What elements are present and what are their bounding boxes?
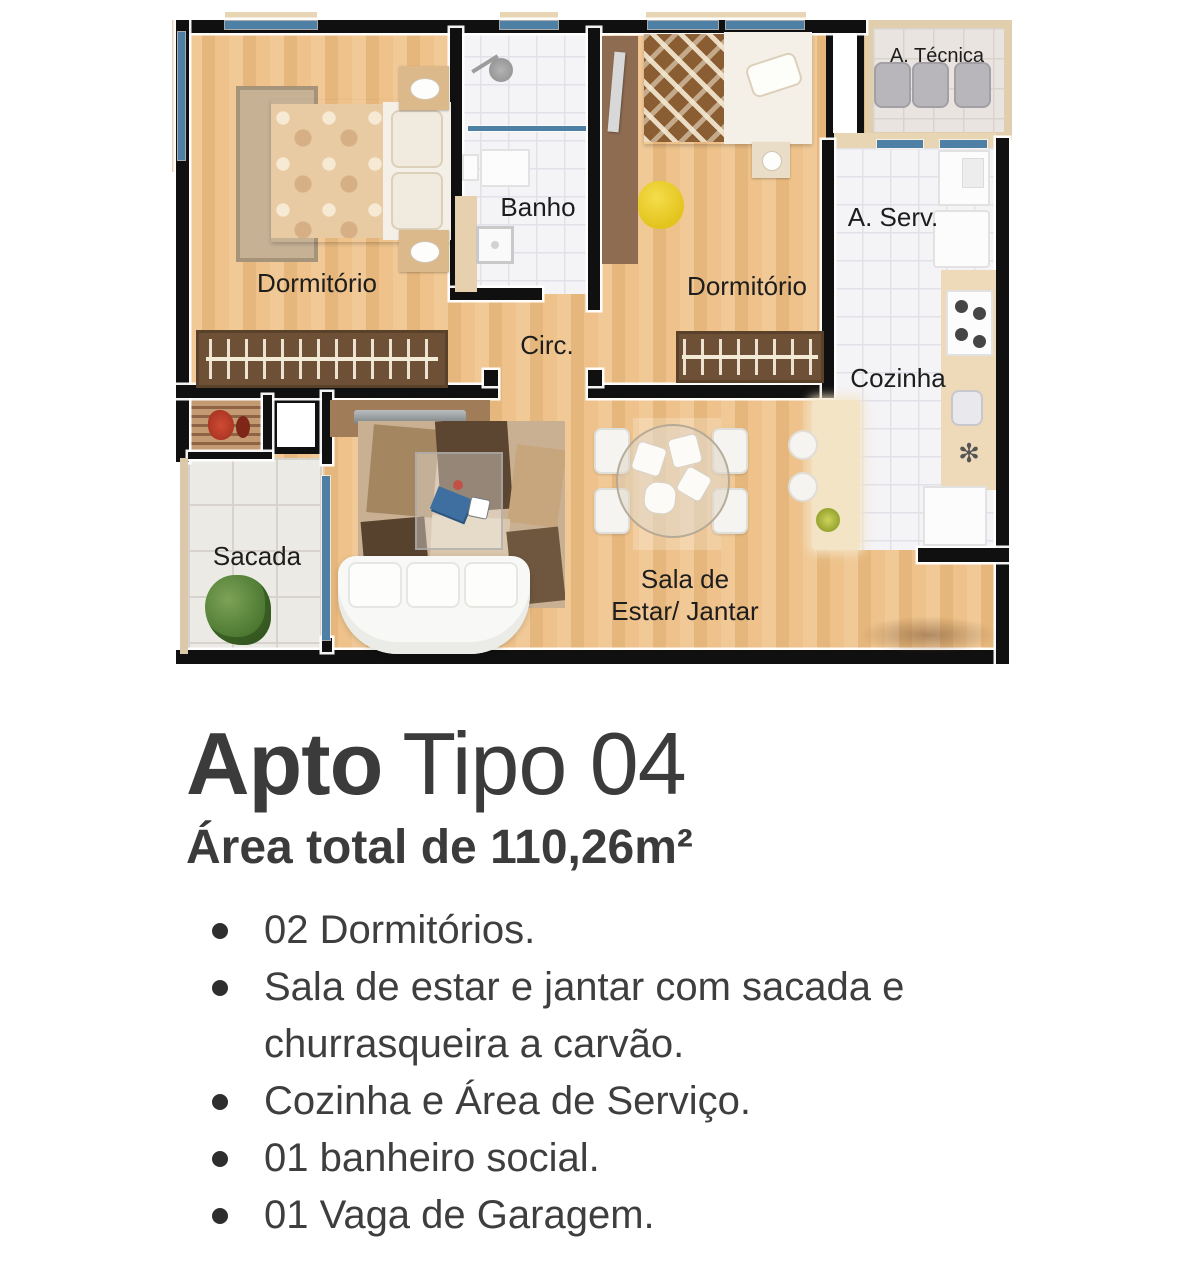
total-area-subtitle: Área total de 110,26m² [186, 820, 693, 875]
dorm1-lamp-bottom [410, 241, 440, 263]
wall-dorm2-bottom [588, 385, 834, 398]
feature-item-cozinha: Cozinha e Área de Serviço. [204, 1073, 1064, 1130]
page-title: AptoTipo 04 [186, 716, 686, 812]
window-glass-dorm2a [648, 21, 718, 29]
grill-meat [208, 410, 234, 440]
dorm1-nightstand-bottom [399, 230, 449, 272]
kitchen-sink [951, 390, 983, 426]
label-sala: Sala de Estar/ Jantar [611, 563, 758, 627]
sofa-cushion-3 [464, 562, 518, 608]
dorm1-lamp-top [410, 78, 440, 100]
wall-sacada-bottom-cap [322, 638, 332, 652]
dorm1-blanket [271, 104, 385, 238]
dorm2-beanbag [638, 181, 684, 229]
shower-tray [476, 226, 514, 264]
floor-plan: ✻ Dormitório Banho Circ. Dormit [0, 0, 1179, 700]
dorm2-desk-object [762, 151, 782, 171]
label-atecnica: A. Técnica [890, 40, 984, 72]
plate-1 [630, 440, 668, 478]
sofa-cushion-1 [348, 562, 402, 608]
laundry-tank [938, 150, 990, 206]
window-glass-aserv-2 [940, 140, 987, 148]
dorm2-wardrobe [676, 331, 824, 383]
coffee-table-candle [453, 480, 463, 490]
stove-burner-3 [955, 328, 968, 341]
banho-vanity [455, 196, 477, 292]
wall-banho-dorm2 [588, 28, 600, 310]
floor-shadow [858, 616, 998, 654]
stool-1 [788, 430, 818, 460]
dorm1-wardrobe-rail [206, 357, 438, 361]
dorm1-pillow-1 [391, 110, 443, 168]
coffee-table-book [430, 486, 472, 522]
grill-meat-2 [236, 416, 250, 438]
dorm2-bed [644, 32, 812, 144]
label-dorm2: Dormitório [687, 270, 807, 302]
kitchen-faucet: ✻ [954, 438, 984, 468]
wall-dorm1-bottom-cap [484, 370, 498, 386]
banho-toilet [462, 154, 479, 181]
washing-machine [933, 210, 990, 268]
dorm1-pillow-2 [391, 172, 443, 230]
laundry-tank-basin [962, 158, 984, 188]
shower-drain [491, 241, 499, 249]
sofa [338, 556, 530, 654]
label-sala-line2: Estar/ Jantar [611, 595, 758, 627]
feature-item-banheiro: 01 banheiro social. [204, 1130, 1064, 1187]
stove-burner-2 [973, 307, 986, 320]
title-apto: Apto [186, 714, 382, 813]
shower-glass [468, 126, 586, 131]
counter-plant [816, 508, 840, 532]
feature-list: 02 Dormitórios. Sala de estar e jantar c… [204, 902, 1064, 1244]
plate-3 [675, 465, 713, 503]
dorm2-wardrobe-rail [682, 355, 818, 359]
coffee-table [415, 452, 503, 550]
feature-item-sala: Sala de estar e jantar com sacada e chur… [204, 959, 1064, 1073]
duct-shaft-balcony [270, 396, 322, 454]
dorm1-nightstand-top [399, 66, 449, 110]
fridge [923, 486, 987, 546]
balcony-sliding-door [322, 476, 330, 640]
balcony-railing [180, 458, 188, 654]
coffee-table-dice [467, 496, 491, 520]
dorm1-bed [271, 100, 451, 242]
dorm2-desk [752, 142, 790, 178]
stool-2 [788, 472, 818, 502]
stove-burner-4 [973, 335, 986, 348]
banho-sink [480, 149, 530, 187]
window-glass-left [178, 32, 185, 160]
feature-item-garagem: 01 Vaga de Garagem. [204, 1187, 1064, 1244]
dorm1-wardrobe [196, 330, 448, 388]
label-sala-line1: Sala de [611, 563, 758, 595]
barbecue-grill [190, 398, 264, 454]
dorm2-blanket [644, 34, 726, 142]
label-aserv: A. Serv. [848, 201, 939, 233]
shower-head [489, 58, 513, 82]
sofa-cushion-2 [406, 562, 460, 608]
feature-item-dormitorios: 02 Dormitórios. [204, 902, 1064, 959]
dining-table [616, 424, 730, 538]
plate-4 [642, 480, 677, 515]
window-glass-dorm1 [225, 21, 317, 29]
wall-outer-right [996, 138, 1009, 664]
flyer-page: { "plan": { "rooms": { "dorm1": "Dormitó… [0, 0, 1179, 1265]
wall-niche-right [263, 395, 272, 458]
label-circ: Circ. [520, 329, 573, 361]
stove-burner-1 [955, 300, 968, 313]
duct-shaft-top [826, 26, 864, 140]
window-glass-banho [500, 21, 558, 29]
wall-niche-bottom [188, 452, 272, 459]
window-glass-dorm2b [726, 21, 804, 29]
label-cozinha: Cozinha [850, 362, 945, 394]
label-sacada: Sacada [213, 540, 301, 572]
wall-kitchen-bottom [918, 548, 1009, 562]
rug-patch-3 [507, 444, 565, 528]
label-banho: Banho [500, 191, 575, 223]
stove [946, 290, 993, 356]
plate-2 [667, 433, 703, 469]
label-dorm1: Dormitório [257, 267, 377, 299]
window-glass-aserv-1 [877, 140, 923, 148]
wall-dorm2-bottom-cap [588, 370, 602, 386]
title-tipo: Tipo 04 [402, 714, 685, 813]
